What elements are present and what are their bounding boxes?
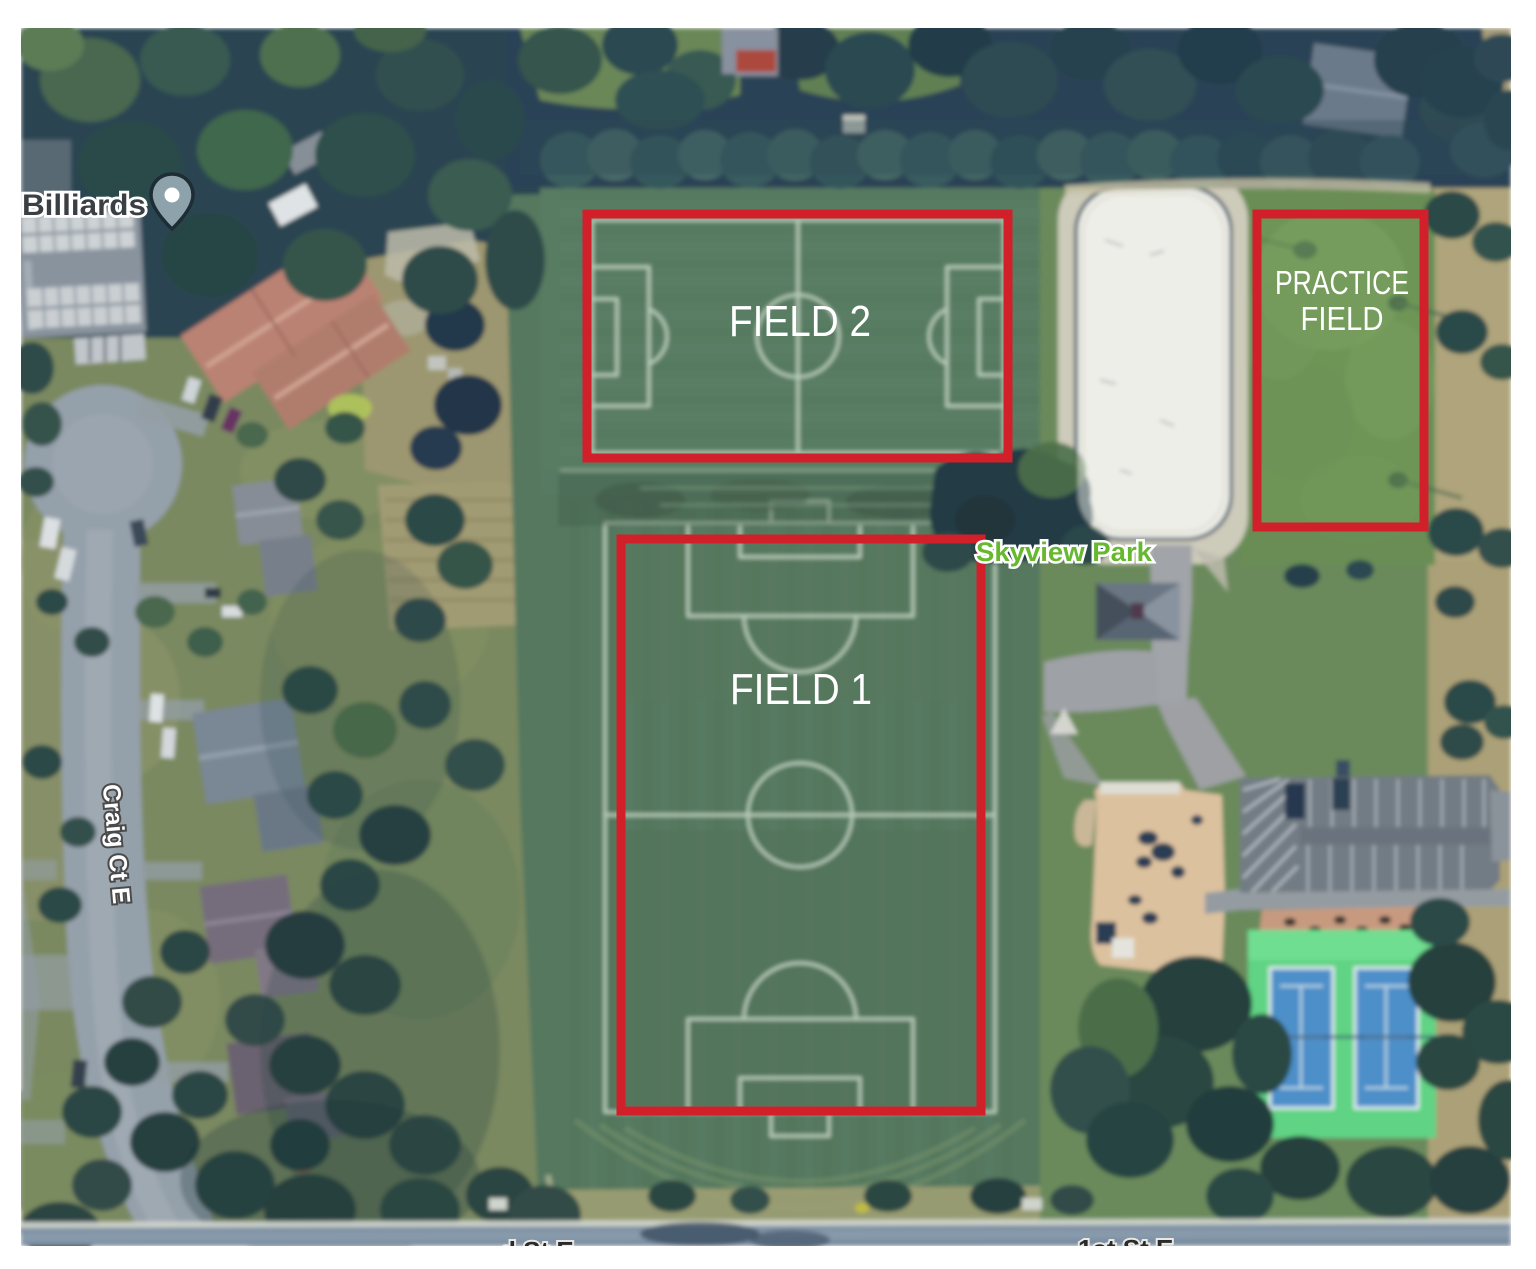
svg-text:n Billiards: n Billiards <box>0 189 146 222</box>
svg-text:PRACTICE: PRACTICE <box>1275 264 1409 301</box>
svg-text:FIELD: FIELD <box>1301 300 1384 337</box>
svg-text:Skyview Park: Skyview Park <box>976 537 1153 567</box>
svg-text:FIELD 2: FIELD 2 <box>729 297 871 346</box>
svg-text:FIELD 1: FIELD 1 <box>730 665 872 714</box>
